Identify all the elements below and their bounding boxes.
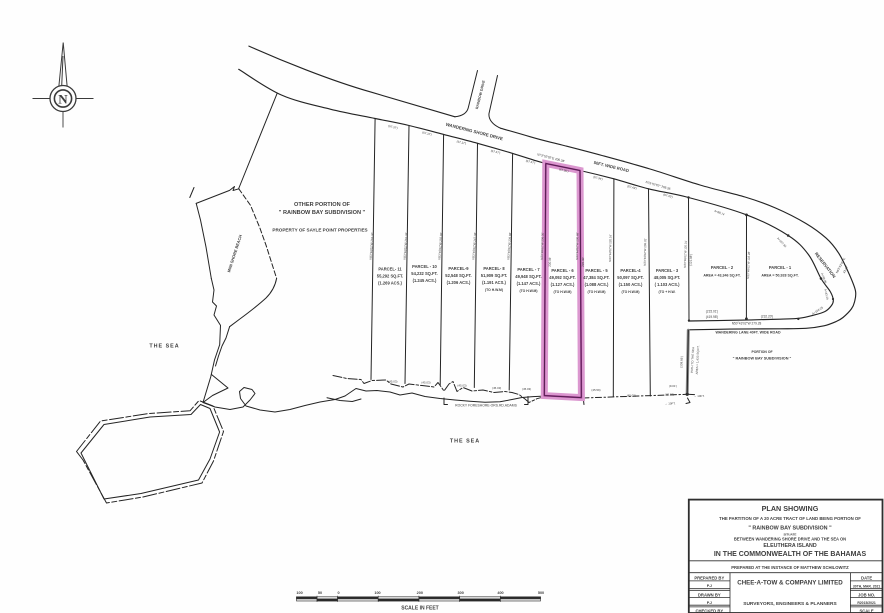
svg-text:THE PARTITION OF A 20 ACRE TRA: THE PARTITION OF A 20 ACRE TRACT OF LAND… <box>719 516 861 521</box>
svg-text:(121.98'): (121.98') <box>689 254 693 266</box>
svg-text:(1.245 ACS.): (1.245 ACS.) <box>413 278 437 283</box>
svg-text:R2015/2021: R2015/2021 <box>857 601 876 605</box>
svg-text:PORTION OF: PORTION OF <box>751 350 772 354</box>
svg-text:(45.59): (45.59) <box>591 388 600 392</box>
svg-text:" RAINBOW BAY SUBDIVISION ": " RAINBOW BAY SUBDIVISION " <box>733 357 792 361</box>
svg-text:50,097 SQ.FT.: 50,097 SQ.FT. <box>617 275 643 280</box>
svg-text:PARCEL- 11: PARCEL- 11 <box>378 267 402 272</box>
svg-text:(45.03): (45.03) <box>627 394 636 398</box>
svg-text:PARCEL - 6: PARCEL - 6 <box>551 268 574 273</box>
svg-text:(108.66'): (108.66') <box>679 356 684 368</box>
svg-text:PARCEL - 2: PARCEL - 2 <box>711 265 734 270</box>
svg-text:" RAINBOW BAY SUBDIVISION ": " RAINBOW BAY SUBDIVISION " <box>279 210 366 216</box>
svg-text:0: 0 <box>337 591 339 595</box>
svg-text:IN THE COMMONWEALTH OF THE BAH: IN THE COMMONWEALTH OF THE BAHAMAS <box>714 551 867 558</box>
svg-text:THE SEA: THE SEA <box>450 439 480 445</box>
svg-text:PROPERTY OF SAYLE POINT PROPER: PROPERTY OF SAYLE POINT PROPERTIES <box>272 228 367 233</box>
svg-text:48,005 SQ.FT.: 48,005 SQ.FT. <box>654 275 680 280</box>
svg-text:PREPARED BY: PREPARED BY <box>694 576 724 581</box>
svg-text:( 1.103 ACS.): ( 1.103 ACS.) <box>655 282 681 287</box>
svg-text:51,909 SQ.FT.: 51,909 SQ.FT. <box>481 273 507 278</box>
svg-text:CHEE-A-TOW & COMPANY LIMITED: CHEE-A-TOW & COMPANY LIMITED <box>737 580 843 587</box>
svg-text:PREPARED AT THE INSTANCE OF MA: PREPARED AT THE INSTANCE OF MATTHEW SCHI… <box>731 565 849 570</box>
svg-text:→ 10FT.: → 10FT. <box>694 394 705 398</box>
svg-text:N33°46'02"W 209.32': N33°46'02"W 209.32' <box>643 238 647 266</box>
svg-text:N50°43'02"W 279.28: N50°43'02"W 279.28 <box>732 321 762 325</box>
svg-text:200.36': 200.36' <box>548 257 552 267</box>
svg-text:PARCEL - 1: PARCEL - 1 <box>769 265 792 270</box>
svg-text:(TO H.W.M): (TO H.W.M) <box>553 290 571 294</box>
svg-text:(TO H.W.M): (TO H.W.M) <box>485 288 503 292</box>
svg-text:226.30': 226.30' <box>581 257 585 267</box>
svg-text:49,948 SQ.FT.: 49,948 SQ.FT. <box>515 274 541 279</box>
svg-text:PARCEL - 10: PARCEL - 10 <box>412 264 437 269</box>
svg-text:(TO H.W.M): (TO H.W.M) <box>621 290 639 294</box>
svg-text:(45.03): (45.03) <box>421 381 430 385</box>
svg-text:(1.088 ACS.): (1.088 ACS.) <box>585 282 609 287</box>
svg-text:DATE: DATE <box>861 576 872 581</box>
svg-text:N33°46'02"W 230.68': N33°46'02"W 230.68' <box>575 232 579 260</box>
svg-text:(TO H.W.M): (TO H.W.M) <box>519 289 537 293</box>
svg-text:50: 50 <box>318 591 322 595</box>
svg-text:CHECKED BY: CHECKED BY <box>695 609 723 613</box>
svg-text:100: 100 <box>374 591 380 595</box>
svg-text:PARCEL - 3: PARCEL - 3 <box>656 268 679 273</box>
svg-text:300: 300 <box>458 591 464 595</box>
svg-text:(45.03): (45.03) <box>665 392 674 396</box>
svg-text:54,232 SQ.FT.: 54,232 SQ.FT. <box>411 271 437 276</box>
svg-text:(232.20'): (232.20') <box>761 314 773 318</box>
svg-text:(45.03): (45.03) <box>388 380 397 384</box>
svg-text:SCALE: SCALE <box>859 609 873 613</box>
svg-text:(45.03): (45.03) <box>522 387 531 391</box>
svg-text:(45.03): (45.03) <box>492 386 501 390</box>
svg-text:500: 500 <box>538 591 544 595</box>
svg-text:PARCEL-4: PARCEL-4 <box>620 268 641 273</box>
svg-text:(1.127 ACS.): (1.127 ACS.) <box>551 282 575 287</box>
svg-text:" RAINBOW BAY SUBDIVISION ": " RAINBOW BAY SUBDIVISION " <box>748 525 832 531</box>
svg-text:(45.03): (45.03) <box>457 384 466 388</box>
svg-text:30TH, MAR. 2021: 30TH, MAR. 2021 <box>853 585 880 589</box>
svg-text:PARCEL - 7: PARCEL - 7 <box>517 267 540 272</box>
svg-text:100: 100 <box>296 591 302 595</box>
svg-text:THE SEA: THE SEA <box>149 344 179 350</box>
svg-text:400: 400 <box>497 591 503 595</box>
svg-text:→ 10FT.: → 10FT. <box>665 402 676 406</box>
svg-text:(1.191 ACS.): (1.191 ACS.) <box>482 280 506 285</box>
svg-text:PARCEL- 8: PARCEL- 8 <box>483 266 505 271</box>
svg-text:P.J: P.J <box>707 601 712 605</box>
svg-text:ROCKY FORESHORE-ORS.RD.ADAMS: ROCKY FORESHORE-ORS.RD.ADAMS <box>455 404 517 408</box>
svg-text:55,292 SQ.FT.: 55,292 SQ.FT. <box>377 274 403 279</box>
svg-text:SCALE IN FEET: SCALE IN FEET <box>401 606 439 612</box>
svg-text:OTHER PORTION OF: OTHER PORTION OF <box>294 202 351 208</box>
svg-text:49,092 SQ.FT.: 49,092 SQ.FT. <box>549 275 575 280</box>
svg-text:(TO + H.W.: (TO + H.W. <box>659 290 676 294</box>
svg-text:PARCEL - 5: PARCEL - 5 <box>585 268 608 273</box>
svg-text:N: N <box>58 92 68 107</box>
svg-text:AREA = 50,928 SQ.FT.: AREA = 50,928 SQ.FT. <box>761 274 799 278</box>
svg-text:(419.98'): (419.98') <box>706 315 718 319</box>
svg-text:N33°46'02"W 220.16': N33°46'02"W 220.16' <box>608 234 612 262</box>
svg-text:AREA = 43,346 SQ.FT.: AREA = 43,346 SQ.FT. <box>703 274 741 278</box>
svg-text:SURVEYORS, ENGINEERS & PLANNER: SURVEYORS, ENGINEERS & PLANNERS <box>743 601 837 607</box>
svg-text:ELEUTHERA ISLAND: ELEUTHERA ISLAND <box>763 543 817 549</box>
svg-text:52,548 SQ.FT.: 52,548 SQ.FT. <box>445 273 471 278</box>
svg-text:(TO H.W.M): (TO H.W.M) <box>587 290 605 294</box>
svg-text:PLAN SHOWING: PLAN SHOWING <box>762 504 819 513</box>
svg-text:(1.269 ACS.): (1.269 ACS.) <box>378 281 402 286</box>
svg-text:(9.01'): (9.01') <box>669 384 677 388</box>
svg-text:(215.01'): (215.01') <box>706 310 718 314</box>
svg-text:200: 200 <box>417 591 423 595</box>
svg-text:(1.150 ACS.): (1.150 ACS.) <box>619 282 643 287</box>
svg-text:WANDERING LANE 40FT. WIDE ROAD: WANDERING LANE 40FT. WIDE ROAD <box>715 331 780 335</box>
svg-text:DRAWN BY: DRAWN BY <box>698 592 721 597</box>
svg-text:PARCEL-9: PARCEL-9 <box>448 266 469 271</box>
svg-text:(1.147 ACS.): (1.147 ACS.) <box>517 281 541 286</box>
svg-text:(1.206 ACS.): (1.206 ACS.) <box>447 280 471 285</box>
svg-text:P.J: P.J <box>707 584 712 588</box>
svg-text:47,384 SQ.FT.: 47,384 SQ.FT. <box>583 275 609 280</box>
svg-text:BETWEEN WANDERING SHORE DRIVE: BETWEEN WANDERING SHORE DRIVE AND THE SE… <box>734 537 846 542</box>
svg-text:JOB NO.: JOB NO. <box>858 592 875 597</box>
